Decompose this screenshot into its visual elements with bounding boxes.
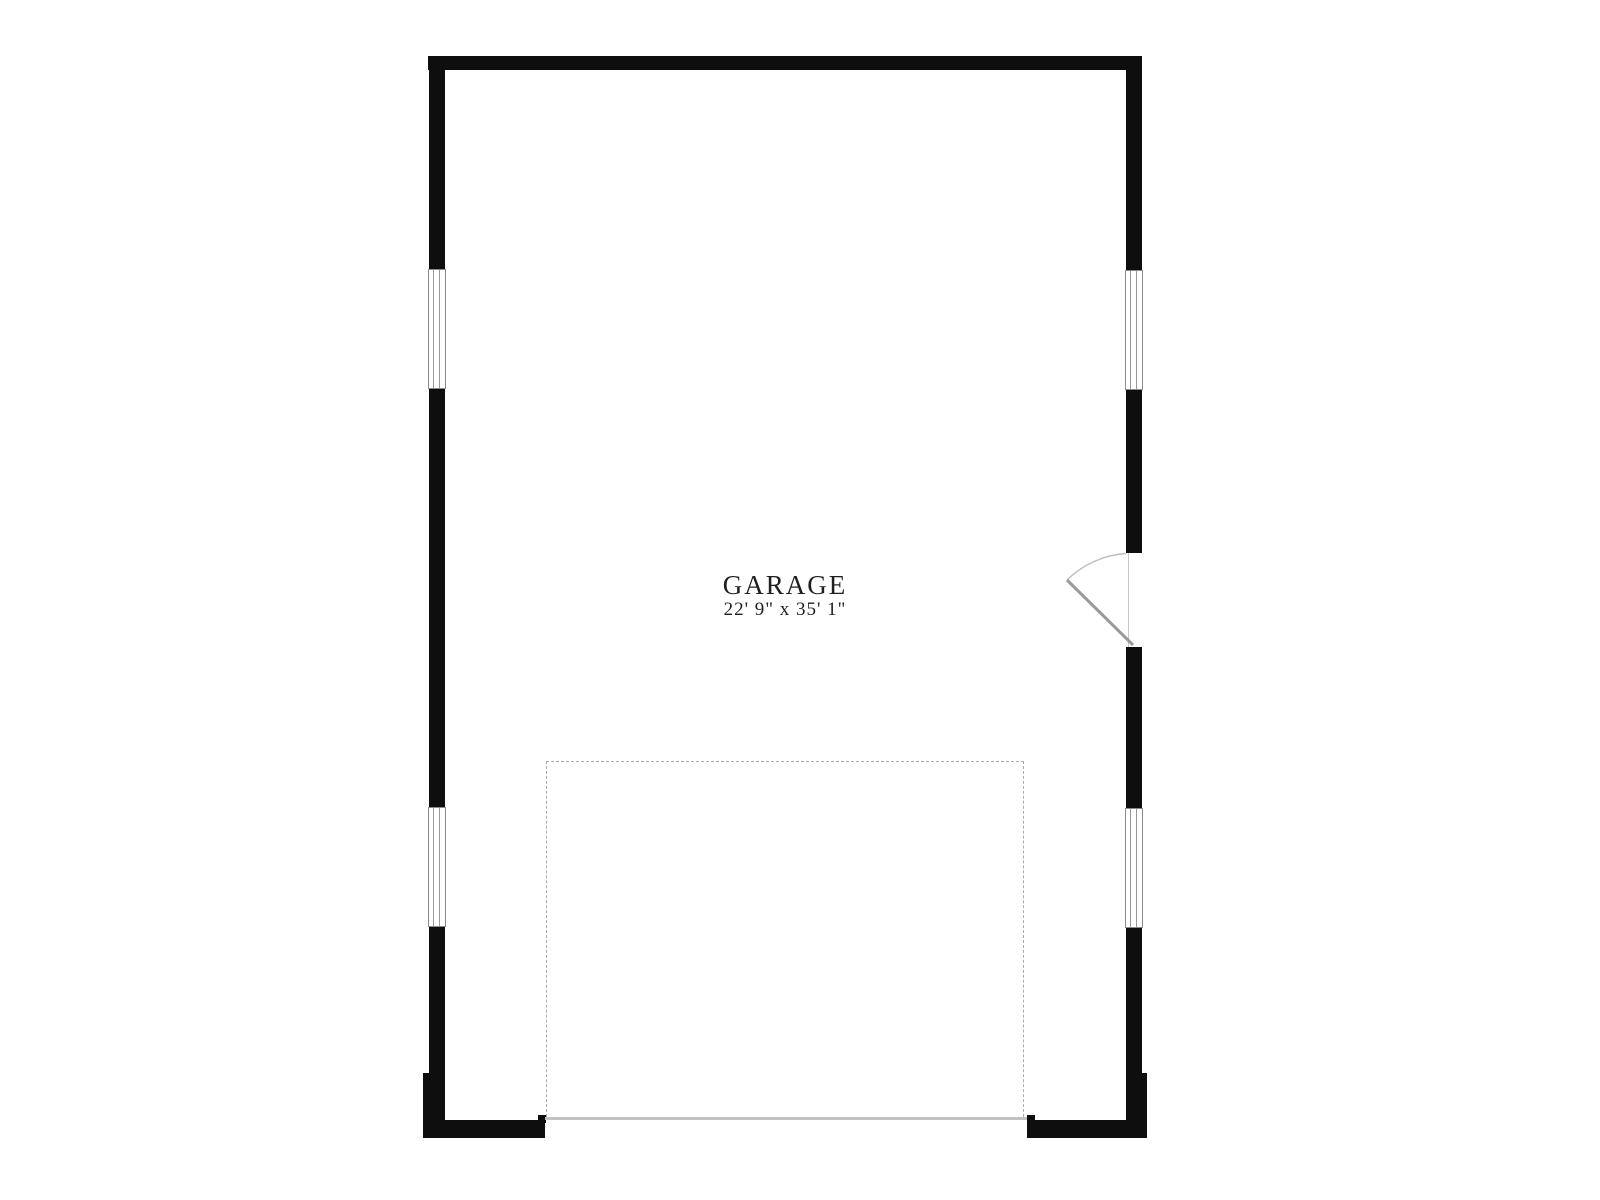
garage-door-jamb-right — [1027, 1115, 1035, 1123]
door-leaf — [1067, 580, 1133, 645]
wall-left-upper-segment — [429, 56, 445, 269]
window-left-lower-icon — [428, 807, 446, 927]
window-right-lower-icon — [1125, 808, 1143, 928]
entry-door-symbol — [1020, 530, 1160, 670]
window-left-upper-icon — [428, 269, 446, 389]
wall-left-lower-segment — [429, 927, 445, 1077]
garage-door-opening-line — [545, 1117, 1027, 1120]
wall-left-middle-segment — [429, 389, 445, 807]
wall-bottom-right-segment — [1027, 1120, 1147, 1138]
door-swing-arc — [1067, 554, 1126, 581]
floor-plan-canvas: GARAGE 22' 9" x 35' 1" — [0, 0, 1600, 1200]
wall-right-upper-segment — [1126, 56, 1142, 270]
wall-right-above-door-segment — [1126, 390, 1142, 553]
wall-bottom-left-segment — [423, 1120, 545, 1138]
room-name-label: GARAGE — [585, 571, 985, 599]
wall-top — [428, 56, 1142, 70]
window-right-upper-icon — [1125, 270, 1143, 390]
wall-right-below-door-segment — [1126, 647, 1142, 808]
overhead-door-dashed-outline — [546, 761, 1024, 1117]
wall-right-lower-segment — [1126, 928, 1142, 1077]
room-label-block: GARAGE 22' 9" x 35' 1" — [585, 571, 985, 621]
room-dimensions-label: 22' 9" x 35' 1" — [585, 599, 985, 621]
